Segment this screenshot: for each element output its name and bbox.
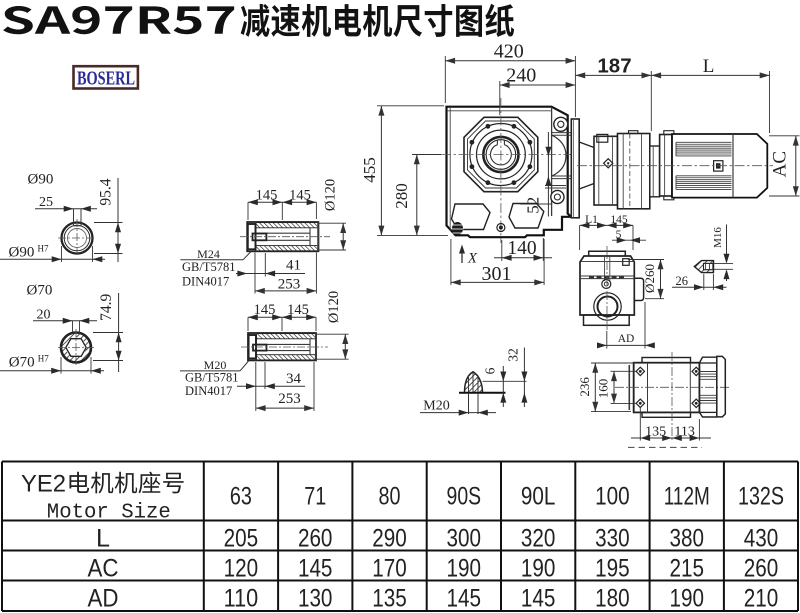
svg-text:100: 100: [595, 482, 630, 510]
svg-text:41: 41: [286, 258, 301, 274]
svg-text:160: 160: [596, 379, 611, 399]
svg-text:260: 260: [298, 525, 333, 553]
svg-text:300: 300: [447, 525, 482, 553]
svg-text:DIN4017: DIN4017: [182, 275, 229, 289]
svg-text:280: 280: [392, 183, 411, 209]
svg-text:BOSERL: BOSERL: [77, 69, 135, 90]
svg-text:253: 253: [278, 391, 301, 407]
svg-text:132S: 132S: [738, 482, 784, 510]
svg-text:145: 145: [447, 584, 482, 612]
svg-text:Motor Size: Motor Size: [47, 502, 171, 525]
svg-text:GB/T5781: GB/T5781: [182, 260, 235, 274]
svg-text:140: 140: [507, 238, 536, 259]
svg-text:130: 130: [298, 584, 333, 612]
svg-text:25: 25: [39, 195, 53, 210]
svg-text:236: 236: [577, 377, 592, 397]
svg-text:Ø70: Ø70: [27, 283, 53, 299]
svg-text:52: 52: [524, 197, 543, 214]
svg-text:301: 301: [482, 263, 512, 285]
svg-text:Ø90: Ø90: [9, 245, 35, 261]
svg-text:187: 187: [597, 54, 631, 77]
svg-text:34: 34: [286, 371, 302, 387]
svg-text:145: 145: [521, 584, 556, 612]
svg-text:120: 120: [224, 555, 259, 583]
svg-text:Ø90: Ø90: [28, 172, 54, 188]
svg-text:253: 253: [278, 277, 301, 293]
svg-text:430: 430: [744, 525, 779, 553]
svg-text:L: L: [96, 525, 110, 553]
svg-text:AC: AC: [770, 151, 791, 177]
svg-text:Ø70: Ø70: [9, 355, 35, 371]
svg-text:95.4: 95.4: [98, 178, 115, 205]
svg-text:90L: 90L: [521, 482, 556, 510]
svg-text:290: 290: [372, 525, 407, 553]
svg-text:26: 26: [676, 274, 689, 288]
svg-text:260: 260: [744, 555, 779, 583]
svg-text:AC: AC: [88, 555, 119, 583]
svg-text:DIN4017: DIN4017: [185, 384, 232, 398]
svg-text:110: 110: [224, 584, 259, 612]
svg-text:330: 330: [595, 525, 630, 553]
svg-text:63: 63: [230, 482, 252, 510]
svg-text:145: 145: [298, 555, 333, 583]
svg-text:M24: M24: [197, 247, 220, 261]
svg-text:112M: 112M: [664, 482, 710, 510]
svg-text:L: L: [703, 56, 715, 77]
svg-text:380: 380: [670, 525, 705, 553]
svg-text:80: 80: [379, 482, 401, 510]
svg-text:180: 180: [595, 584, 630, 612]
svg-text:Ø260: Ø260: [642, 264, 657, 293]
svg-text:190: 190: [447, 555, 482, 583]
svg-text:74.9: 74.9: [98, 293, 115, 320]
svg-text:AD: AD: [618, 333, 635, 345]
svg-text:Ø120: Ø120: [323, 179, 339, 211]
svg-text:190: 190: [521, 555, 556, 583]
svg-text:H7: H7: [38, 244, 49, 254]
svg-text:215: 215: [670, 555, 705, 583]
svg-text:320: 320: [521, 525, 556, 553]
svg-text:32: 32: [506, 348, 521, 362]
svg-text:455: 455: [360, 157, 379, 183]
svg-text:195: 195: [595, 555, 630, 583]
svg-text:X: X: [467, 251, 478, 267]
svg-text:135: 135: [372, 584, 407, 612]
svg-text:420: 420: [494, 41, 524, 63]
svg-text:205: 205: [224, 525, 259, 553]
svg-text:71: 71: [304, 482, 326, 510]
svg-text:GB/T5781: GB/T5781: [185, 371, 238, 385]
svg-text:Ø120: Ø120: [326, 291, 342, 323]
svg-text:240: 240: [506, 64, 536, 86]
svg-text:210: 210: [744, 584, 779, 612]
svg-text:H7: H7: [38, 354, 49, 364]
svg-text:YE2: YE2: [21, 471, 66, 498]
svg-text:M20: M20: [423, 399, 449, 414]
svg-text:6: 6: [483, 367, 498, 374]
svg-text:170: 170: [372, 555, 407, 583]
svg-text:AD: AD: [88, 584, 119, 612]
svg-text:90S: 90S: [447, 482, 482, 510]
svg-text:20: 20: [37, 307, 51, 322]
svg-text:M16: M16: [712, 227, 724, 248]
svg-text:190: 190: [670, 584, 705, 612]
